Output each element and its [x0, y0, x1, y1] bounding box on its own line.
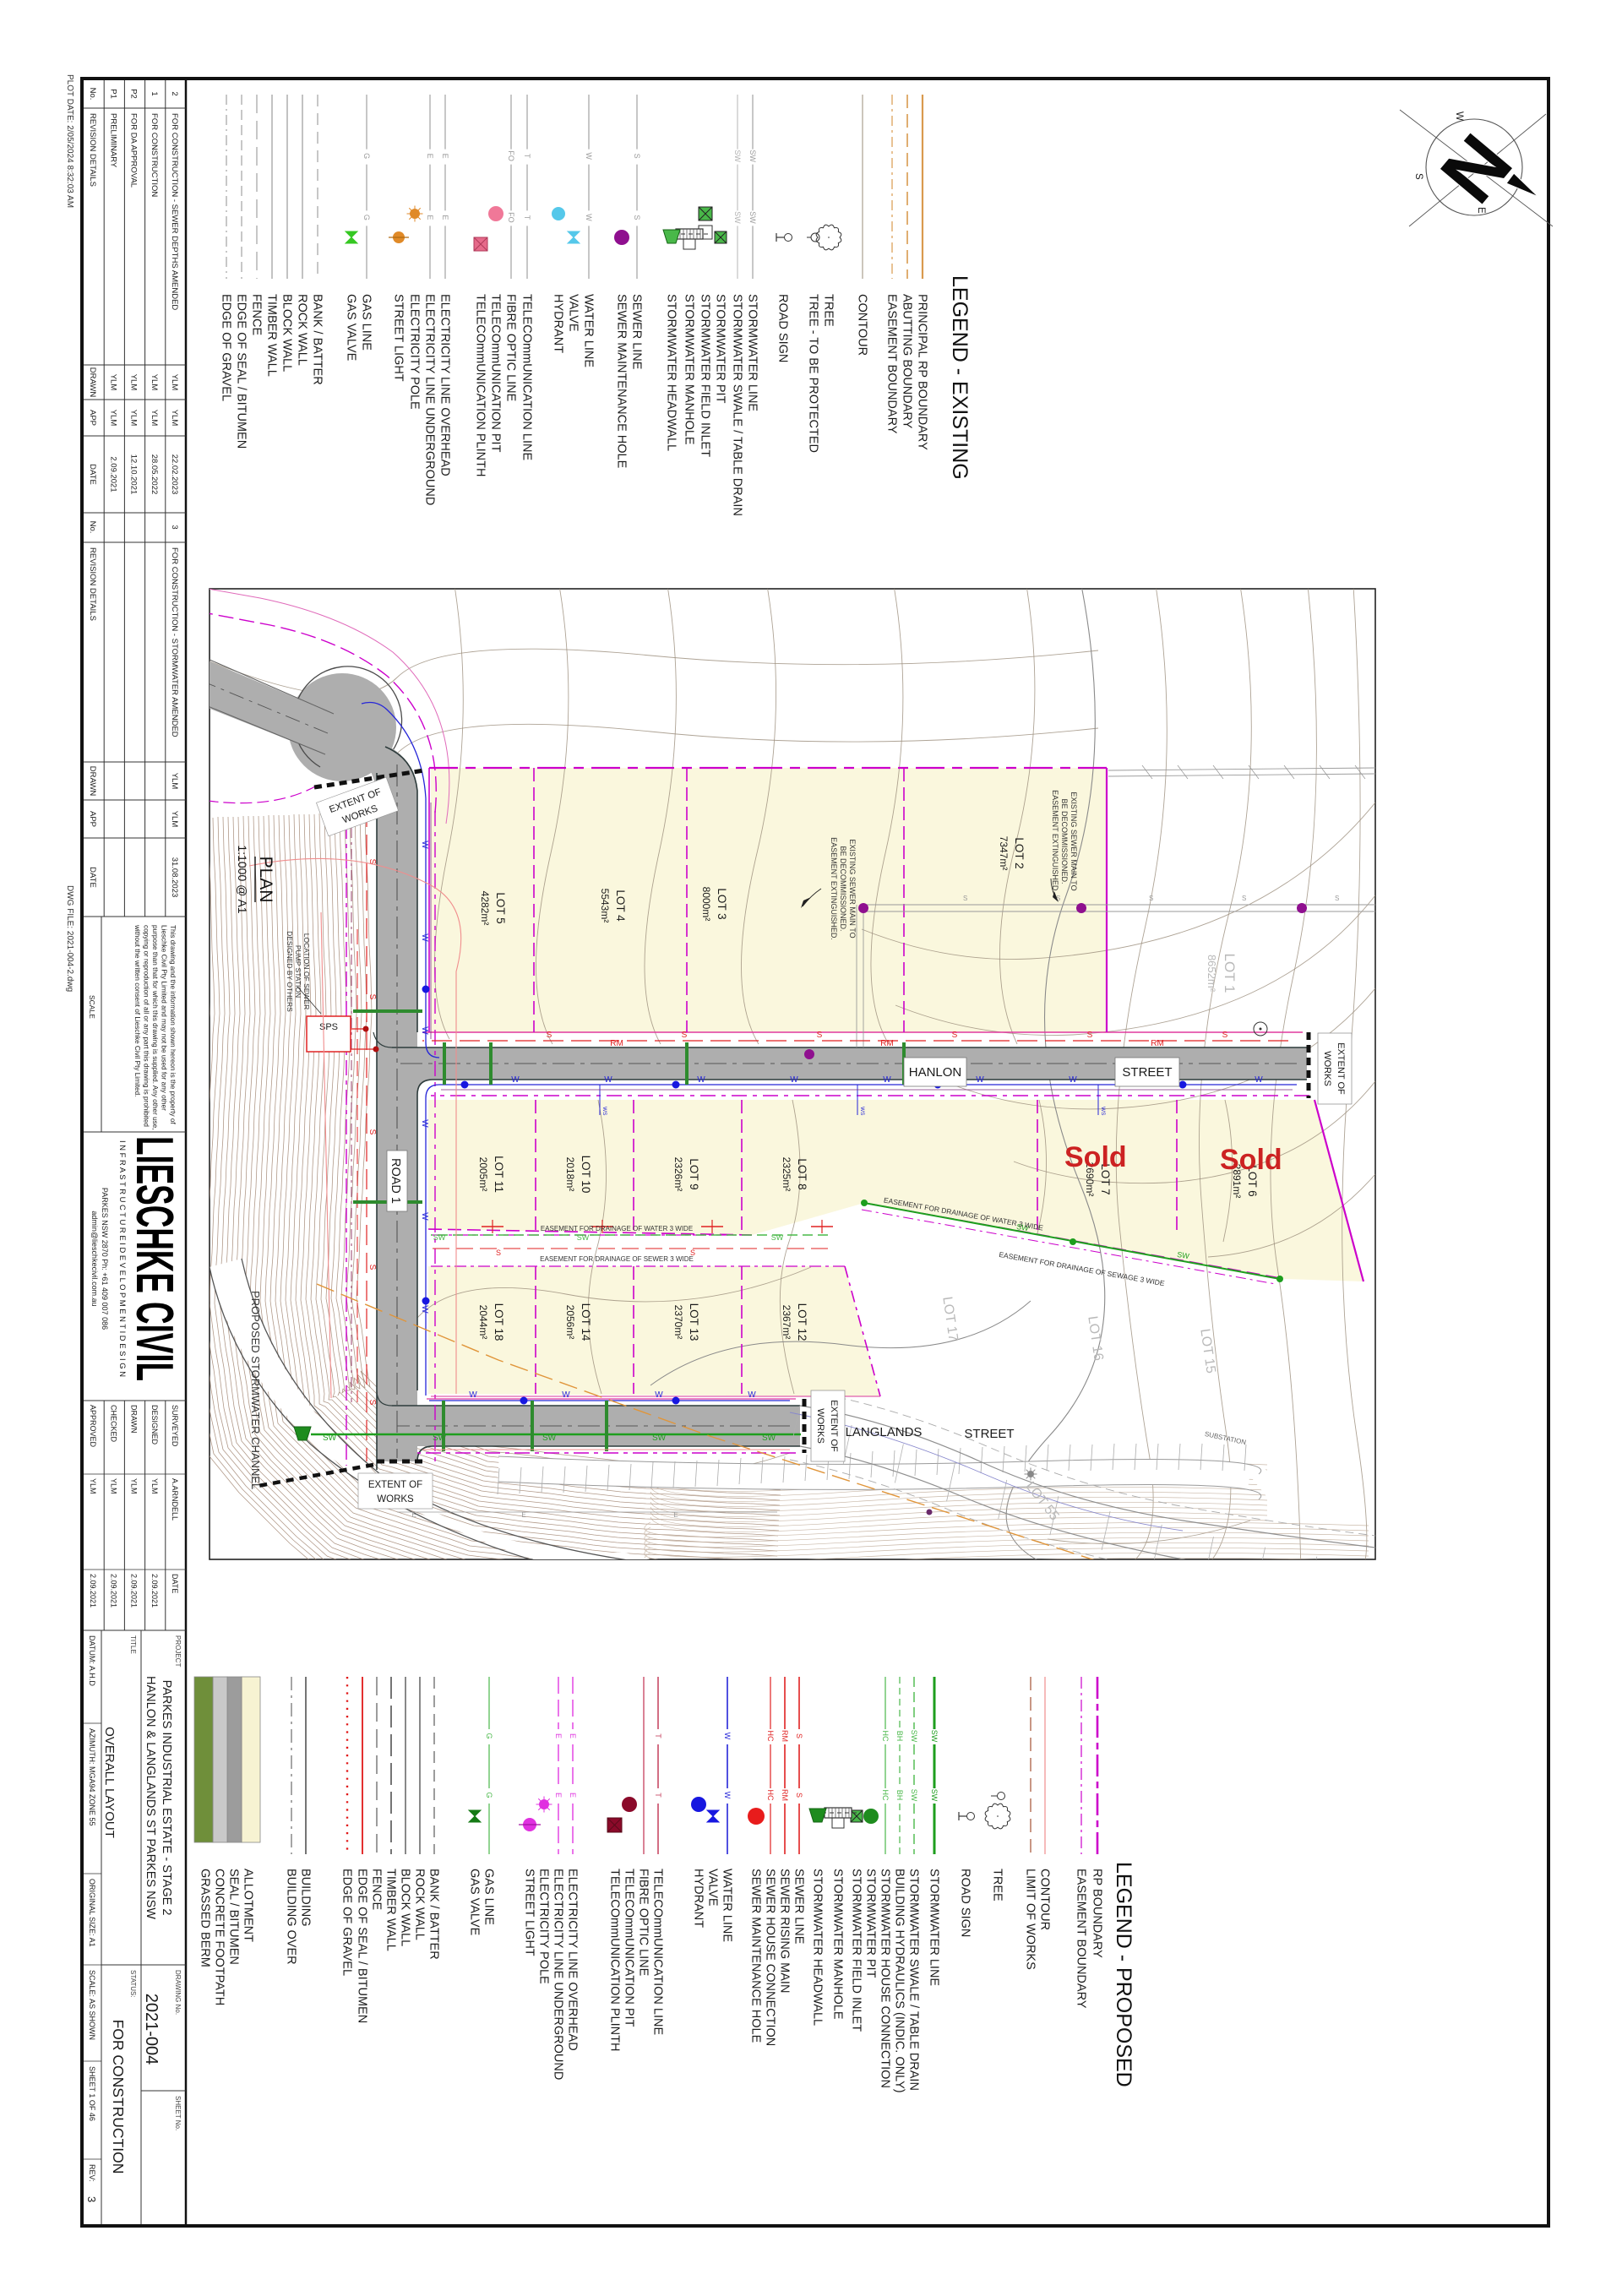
- svg-text:W: W: [511, 1075, 520, 1085]
- svg-text:8000m²: 8000m²: [700, 887, 712, 922]
- svg-text:RM: RM: [781, 1789, 789, 1801]
- svg-text:LEGEND - PROPOSED: LEGEND - PROPOSED: [1112, 1862, 1135, 2087]
- svg-text:SW: SW: [930, 1789, 939, 1802]
- svg-text:2.09.2021: 2.09.2021: [89, 1574, 97, 1608]
- svg-text:DATUM: A.H.D: DATUM: A.H.D: [88, 1635, 96, 1686]
- svg-text:W: W: [976, 1075, 984, 1085]
- svg-text:W: W: [420, 933, 429, 942]
- svg-text:2.09.2021: 2.09.2021: [150, 1574, 159, 1608]
- svg-text:S: S: [1242, 895, 1246, 902]
- svg-text:VALVE: VALVE: [706, 1869, 720, 1907]
- svg-text:EASEMENT BOUNDARY: EASEMENT BOUNDARY: [1075, 1869, 1088, 2009]
- svg-text:LOT 4: LOT 4: [614, 890, 627, 922]
- svg-text:YLM: YLM: [150, 374, 159, 391]
- svg-text:LIMIT OF WORKS: LIMIT OF WORKS: [1024, 1869, 1037, 1970]
- svg-text:S: S: [1149, 895, 1153, 902]
- svg-text:2044m²: 2044m²: [477, 1305, 489, 1340]
- svg-text:W: W: [585, 214, 593, 221]
- svg-text:FIBRE OPTIC LINE: FIBRE OPTIC LINE: [504, 294, 518, 402]
- svg-text:SURVEYED: SURVEYED: [171, 1405, 179, 1447]
- svg-text:EDGE OF SEAL / BITUMEN: EDGE OF SEAL / BITUMEN: [356, 1869, 369, 2023]
- svg-text:SW: SW: [748, 150, 757, 162]
- svg-text:RM: RM: [1151, 1039, 1164, 1048]
- svg-text:DATE: DATE: [171, 1574, 179, 1593]
- svg-text:LOCATION OF SEWER: LOCATION OF SEWER: [302, 933, 311, 1010]
- svg-text:8652m²: 8652m²: [1206, 955, 1218, 993]
- svg-text:HC: HC: [881, 1731, 890, 1742]
- svg-text:E: E: [569, 1733, 577, 1738]
- svg-text:LOT 10: LOT 10: [580, 1156, 592, 1194]
- svg-text:E: E: [426, 215, 434, 220]
- svg-text:FOR CONSTRUCTION: FOR CONSTRUCTION: [150, 113, 159, 197]
- svg-text:purpose than that for which t: purpose than that for which this drawing…: [151, 925, 159, 1130]
- svg-text:YLM: YLM: [170, 410, 179, 427]
- svg-text:1: 1: [150, 91, 159, 95]
- svg-text:W: W: [585, 152, 593, 160]
- svg-text:G: G: [362, 153, 371, 159]
- svg-text:2018m²: 2018m²: [564, 1157, 576, 1192]
- svg-text:E: E: [411, 1511, 416, 1519]
- svg-text:STORMWATER FIELD INLET: STORMWATER FIELD INLET: [850, 1869, 863, 2032]
- svg-text:SHEET No.: SHEET No.: [174, 2096, 182, 2130]
- svg-text:E: E: [554, 1793, 563, 1798]
- svg-text:SW: SW: [733, 211, 742, 224]
- svg-text:REVISION DETAILS: REVISION DETAILS: [88, 547, 97, 621]
- svg-text:FIBRE OPTIC LINE: FIBRE OPTIC LINE: [637, 1869, 650, 1977]
- svg-text:SCALE: SCALE: [88, 995, 96, 1019]
- svg-text:T: T: [654, 1793, 662, 1798]
- svg-text:3: 3: [170, 525, 179, 529]
- svg-text:APPROVED: APPROVED: [89, 1405, 97, 1448]
- svg-text:SW: SW: [577, 1233, 590, 1242]
- svg-text:Sold: Sold: [1220, 1144, 1282, 1176]
- svg-text:I N F R A S T R U C T U R E: I N F R A S T R U C T U R E I D E V E L …: [118, 1140, 127, 1377]
- svg-text:S: S: [1335, 895, 1339, 902]
- svg-text:W: W: [697, 1075, 705, 1085]
- svg-text:DATE: DATE: [88, 464, 97, 485]
- svg-text:EDGE OF GRAVEL: EDGE OF GRAVEL: [340, 1869, 354, 1976]
- svg-text:SW: SW: [910, 1789, 918, 1802]
- svg-text:STORMWATER PIT: STORMWATER PIT: [864, 1869, 878, 1978]
- svg-text:LOT 2: LOT 2: [1013, 837, 1026, 868]
- svg-text:S: S: [1087, 1031, 1093, 1040]
- svg-text:This drawing and the informati: This drawing and the information shown h…: [169, 925, 177, 1124]
- svg-text:WS: WS: [601, 1107, 607, 1116]
- svg-text:LOT 16: LOT 16: [1085, 1315, 1105, 1362]
- svg-text:TELECOmmUNICATION PIT: TELECOmmUNICATION PIT: [623, 1869, 636, 2027]
- svg-text:28.05.2022: 28.05.2022: [150, 454, 159, 495]
- svg-text:TIMBER WALL: TIMBER WALL: [384, 1869, 398, 1951]
- svg-text:E: E: [554, 1733, 563, 1738]
- svg-text:APP: APP: [88, 410, 97, 426]
- svg-text:S: S: [817, 1031, 823, 1040]
- svg-text:admin@lieschkecivil.com.au: admin@lieschkecivil.com.au: [90, 1211, 99, 1306]
- svg-text:ABUTTING BOUNDARY: ABUTTING BOUNDARY: [901, 294, 914, 429]
- svg-text:S: S: [367, 1129, 377, 1135]
- svg-text:STATUS:: STATUS:: [129, 1970, 137, 1998]
- svg-text:A.ARNDELL: A.ARNDELL: [171, 1478, 179, 1521]
- svg-text:2.09.2021: 2.09.2021: [109, 1574, 117, 1608]
- svg-text:E: E: [441, 215, 449, 220]
- svg-text:HC: HC: [881, 1790, 890, 1801]
- svg-text:LOT 13: LOT 13: [688, 1303, 700, 1341]
- svg-text:RM: RM: [880, 1039, 894, 1048]
- svg-text:CHECKED: CHECKED: [109, 1405, 117, 1443]
- svg-text:PARKES NSW 2870 Ph: +61 409: PARKES NSW 2870 Ph: +61 409 007 086: [101, 1188, 109, 1330]
- svg-text:FOR CONSTRUCTION - SEWER DEPTH: FOR CONSTRUCTION - SEWER DEPTHS AMENDED: [170, 113, 179, 310]
- svg-text:SPS: SPS: [319, 1022, 338, 1032]
- svg-text:LOT 3: LOT 3: [716, 888, 728, 919]
- svg-text:DATE: DATE: [88, 867, 97, 888]
- svg-text:YLM: YLM: [170, 811, 179, 828]
- svg-text:G: G: [485, 1733, 493, 1738]
- svg-text:SW: SW: [910, 1730, 918, 1743]
- svg-text:PROPOSED STORMWATER CHANNEL: PROPOSED STORMWATER CHANNEL: [249, 1291, 262, 1489]
- svg-text:ROAD SIGN: ROAD SIGN: [959, 1869, 972, 1937]
- svg-text:S: S: [682, 1031, 688, 1040]
- svg-text:W: W: [883, 1075, 891, 1085]
- svg-text:SEWER RISING MAIN: SEWER RISING MAIN: [778, 1869, 792, 1993]
- svg-text:EASEMENT EXTINGUISHED.: EASEMENT EXTINGUISHED.: [1051, 790, 1059, 893]
- svg-text:WATER LINE: WATER LINE: [721, 1869, 734, 1942]
- svg-text:DRAWN: DRAWN: [88, 766, 97, 797]
- svg-text:SEWER LINE: SEWER LINE: [792, 1869, 806, 1945]
- svg-text:CONTOUR: CONTOUR: [1038, 1869, 1052, 1930]
- svg-text:12.10.2021: 12.10.2021: [129, 454, 139, 495]
- svg-text:T: T: [523, 154, 531, 159]
- svg-text:BE DECOMMISSIONED.: BE DECOMMISSIONED.: [1060, 798, 1069, 884]
- svg-text:W: W: [748, 1390, 756, 1400]
- svg-text:BLOCK WALL: BLOCK WALL: [399, 1869, 412, 1946]
- svg-text:1:1000 @ A1: 1:1000 @ A1: [236, 845, 249, 913]
- svg-text:22.02.2023: 22.02.2023: [170, 454, 179, 495]
- svg-text:APP: APP: [88, 811, 97, 827]
- svg-text:2021-004: 2021-004: [142, 1994, 161, 2065]
- svg-text:W: W: [723, 1792, 732, 1799]
- svg-text:TELECOmmUNICATION LINE: TELECOmmUNICATION LINE: [520, 294, 534, 460]
- svg-text:Lieschke Civil Pty Limited and: Lieschke Civil Pty Limited and may not b…: [161, 925, 168, 1111]
- svg-text:BH: BH: [895, 1790, 904, 1801]
- svg-text:S: S: [367, 1400, 377, 1406]
- svg-text:WS: WS: [1100, 1107, 1106, 1116]
- svg-text:LOT 9: LOT 9: [688, 1158, 700, 1189]
- svg-text:ROAD 1: ROAD 1: [389, 1158, 402, 1204]
- svg-text:YLM: YLM: [130, 1478, 139, 1494]
- svg-text:ROCK WALL: ROCK WALL: [413, 1869, 427, 1940]
- svg-text:LOT 5: LOT 5: [494, 892, 507, 923]
- svg-text:S: S: [795, 1733, 803, 1738]
- svg-text:HYDRANT: HYDRANT: [692, 1869, 705, 1928]
- svg-text:W: W: [723, 1733, 732, 1740]
- svg-text:FO: FO: [507, 150, 515, 161]
- svg-text:S: S: [795, 1793, 803, 1798]
- svg-text:YLM: YLM: [108, 410, 117, 427]
- svg-text:LOT 8: LOT 8: [796, 1158, 808, 1189]
- svg-text:Sold: Sold: [1064, 1141, 1127, 1173]
- svg-text:BE DECOMMISSIONED.: BE DECOMMISSIONED.: [839, 846, 847, 931]
- svg-text:BLOCK WALL: BLOCK WALL: [280, 294, 294, 372]
- svg-text:W: W: [1255, 1075, 1263, 1085]
- svg-text:2367m²: 2367m²: [781, 1305, 792, 1340]
- svg-text:LOT 17: LOT 17: [939, 1296, 960, 1342]
- svg-text:EASEMENT FOR DRAINAGE OF SEWAG: EASEMENT FOR DRAINAGE OF SEWAGE 3 WIDE: [999, 1250, 1166, 1287]
- svg-text:W: W: [1069, 1075, 1077, 1085]
- svg-text:E: E: [441, 154, 449, 159]
- svg-text:FENCE: FENCE: [250, 294, 264, 335]
- svg-text:W: W: [420, 1026, 429, 1035]
- svg-text:SW: SW: [433, 1233, 446, 1242]
- svg-text:GAS VALVE: GAS VALVE: [345, 294, 358, 362]
- svg-text:DRAWING No.: DRAWING No.: [174, 1970, 182, 2015]
- svg-text:ELECTRICITY LINE OVERHEAD: ELECTRICITY LINE OVERHEAD: [438, 294, 452, 476]
- svg-text:EXTENT OF: EXTENT OF: [829, 1400, 839, 1452]
- svg-text:LIESCHKE CIVIL: LIESCHKE CIVIL: [125, 1136, 183, 1381]
- svg-text:YLM: YLM: [129, 410, 139, 427]
- svg-text:WORKS: WORKS: [377, 1494, 414, 1504]
- svg-text:RM: RM: [781, 1730, 789, 1742]
- svg-text:EXISTING SEWER MAIN TO: EXISTING SEWER MAIN TO: [848, 839, 857, 938]
- svg-text:W: W: [655, 1390, 663, 1400]
- svg-text:2005m²: 2005m²: [477, 1157, 489, 1192]
- svg-text:E: E: [521, 1511, 525, 1519]
- svg-text:FOR CONSTRUCTION - STORMWATER: FOR CONSTRUCTION - STORMWATER AMENDED: [170, 547, 179, 737]
- svg-text:YLM: YLM: [129, 374, 139, 391]
- svg-text:WS: WS: [859, 1107, 865, 1116]
- svg-text:5543m²: 5543m²: [599, 889, 611, 923]
- svg-text:SEAL / BITUMEN: SEAL / BITUMEN: [227, 1869, 241, 1965]
- svg-text:GRASSED BERM: GRASSED BERM: [199, 1869, 212, 1967]
- svg-text:S: S: [367, 1265, 377, 1270]
- svg-text:W: W: [420, 841, 429, 849]
- svg-text:LOT 1: LOT 1: [1222, 954, 1238, 993]
- svg-text:BANK / BATTER: BANK / BATTER: [311, 294, 324, 385]
- svg-text:DESIGNED: DESIGNED: [150, 1405, 159, 1445]
- svg-text:STREET: STREET: [1122, 1065, 1172, 1080]
- svg-text:SW: SW: [771, 1233, 784, 1242]
- svg-text:SW: SW: [930, 1730, 939, 1743]
- svg-text:TREE: TREE: [991, 1869, 1004, 1902]
- svg-text:2325m²: 2325m²: [781, 1157, 792, 1192]
- svg-text:VALVE: VALVE: [567, 294, 580, 332]
- svg-text:EDGE OF GRAVEL: EDGE OF GRAVEL: [220, 294, 233, 401]
- svg-text:SW: SW: [652, 1434, 667, 1443]
- svg-text:LOT 18: LOT 18: [493, 1303, 505, 1341]
- svg-text:YLM: YLM: [109, 1478, 117, 1494]
- svg-text:DRAWN: DRAWN: [88, 367, 97, 398]
- svg-text:PLAN: PLAN: [256, 857, 275, 903]
- svg-text:FOR DA APPROVAL: FOR DA APPROVAL: [129, 113, 139, 188]
- svg-text:OVERALL LAYOUT: OVERALL LAYOUT: [102, 1727, 117, 1838]
- svg-text:WORKS: WORKS: [815, 1408, 825, 1444]
- svg-text:ORIGINAL SIZE: A1: ORIGINAL SIZE: A1: [88, 1879, 96, 1947]
- svg-text:TELECOmmUNICATION LINE: TELECOmmUNICATION LINE: [651, 1869, 665, 2035]
- svg-text:S: S: [496, 1249, 501, 1257]
- svg-text:STREET: STREET: [964, 1427, 1014, 1441]
- svg-text:GAS LINE: GAS LINE: [482, 1869, 496, 1925]
- svg-text:ELECTRICITY POLE: ELECTRICITY POLE: [537, 1869, 551, 1984]
- svg-text:CONCRETE FOOTPATH: CONCRETE FOOTPATH: [213, 1869, 226, 2005]
- svg-text:SEWER MAINTENANCE HOLE: SEWER MAINTENANCE HOLE: [615, 294, 629, 469]
- svg-text:SHEET 1 OF 46: SHEET 1 OF 46: [88, 2066, 96, 2121]
- svg-text:S: S: [1222, 1031, 1228, 1040]
- svg-text:YLM: YLM: [108, 374, 117, 391]
- svg-text:ROCK WALL: ROCK WALL: [296, 294, 309, 366]
- svg-text:SCALE: AS SHOWN: SCALE: AS SHOWN: [88, 1970, 96, 2040]
- svg-text:2.09.2021: 2.09.2021: [108, 456, 117, 492]
- svg-text:SUBSTATION: SUBSTATION: [1204, 1430, 1247, 1446]
- svg-text:copying or reproduction of al: copying or reproduction of all or any pa…: [143, 925, 150, 1127]
- svg-text:S: S: [1413, 173, 1423, 180]
- svg-text:LOT 12: LOT 12: [796, 1303, 808, 1341]
- svg-text:E: E: [426, 154, 434, 159]
- svg-text:SW: SW: [748, 211, 757, 224]
- svg-text:W: W: [420, 1119, 429, 1128]
- svg-text:PRINCIPAL RP BOUNDARY: PRINCIPAL RP BOUNDARY: [916, 294, 929, 450]
- svg-text:YLM: YLM: [150, 1478, 159, 1494]
- svg-text:SW: SW: [733, 150, 742, 162]
- svg-text:ELECTRICITY LINE UNDERGROUND: ELECTRICITY LINE UNDERGROUND: [423, 294, 437, 505]
- svg-text:EXTENT OF: EXTENT OF: [368, 1480, 422, 1490]
- svg-text:DWG FILE: 2021-004-2.dwg: DWG FILE: 2021-004-2.dwg: [65, 885, 74, 992]
- svg-text:EXTENT OF: EXTENT OF: [1336, 1042, 1346, 1095]
- svg-text:P1: P1: [108, 89, 117, 99]
- svg-text:PUMP STATION: PUMP STATION: [294, 945, 302, 998]
- svg-text:E: E: [569, 1793, 577, 1798]
- svg-text:PRELIMINARY: PRELIMINARY: [108, 113, 117, 168]
- svg-text:ROAD SIGN: ROAD SIGN: [776, 294, 790, 362]
- svg-text:DESIGNED BY OTHERS: DESIGNED BY OTHERS: [286, 931, 294, 1012]
- svg-text:TELECOmmUNICATION PIT: TELECOmmUNICATION PIT: [489, 294, 503, 453]
- svg-text:TIMBER WALL: TIMBER WALL: [265, 294, 279, 377]
- svg-text:BUILDING: BUILDING: [299, 1869, 313, 1927]
- svg-text:FOR CONSTRUCTION: FOR CONSTRUCTION: [110, 2020, 127, 2174]
- svg-text:TELECOmmUNICATION PLINTH: TELECOmmUNICATION PLINTH: [608, 1869, 622, 2051]
- svg-text:TELECOmmUNICATION PLINTH: TELECOmmUNICATION PLINTH: [474, 294, 487, 476]
- svg-text:LOT 11: LOT 11: [493, 1156, 505, 1193]
- svg-text:FENCE: FENCE: [370, 1869, 384, 1910]
- svg-text:RP BOUNDARY: RP BOUNDARY: [1091, 1869, 1104, 1958]
- svg-text:LOT 15: LOT 15: [1197, 1328, 1217, 1374]
- svg-text:ELECTRICITY POLE: ELECTRICITY POLE: [408, 294, 422, 410]
- svg-text:AZIMUTH: MGA94 ZONE 55: AZIMUTH: MGA94 ZONE 55: [88, 1728, 96, 1826]
- svg-text:SW: SW: [542, 1434, 557, 1443]
- svg-text:without the written consent o: without the written consent of Lieschke …: [133, 924, 141, 1096]
- svg-text:LEGEND - EXISTING: LEGEND - EXISTING: [948, 275, 972, 480]
- svg-text:G: G: [485, 1792, 493, 1798]
- svg-text:HANLON & LANGLANDS ST PARKES N: HANLON & LANGLANDS ST PARKES NSW: [144, 1676, 157, 1919]
- svg-text:EASEMENT BOUNDARY: EASEMENT BOUNDARY: [885, 294, 899, 434]
- svg-text:PLOT DATE: 2/05/2024 8:32:03 A: PLOT DATE: 2/05/2024 8:32:03 AM: [65, 74, 74, 208]
- svg-text:S: S: [547, 1031, 552, 1040]
- svg-text:STORMWATER MANHOLE: STORMWATER MANHOLE: [831, 1869, 845, 2020]
- svg-text:S: S: [633, 215, 641, 220]
- svg-text:SEWER HOUSE CONNECTION: SEWER HOUSE CONNECTION: [764, 1869, 777, 2046]
- svg-text:BUILDING OVER: BUILDING OVER: [285, 1869, 298, 1965]
- svg-text:GAS VALVE: GAS VALVE: [468, 1869, 482, 1936]
- svg-text:W: W: [1454, 112, 1464, 121]
- svg-text:2326m²: 2326m²: [672, 1157, 684, 1192]
- svg-text:YLM: YLM: [170, 374, 179, 391]
- svg-text:EASEMENT EXTINGUISHED.: EASEMENT EXTINGUISHED.: [830, 837, 838, 940]
- svg-text:HC: HC: [766, 1731, 775, 1742]
- svg-text:W: W: [420, 1212, 429, 1221]
- svg-text:W: W: [562, 1390, 570, 1400]
- svg-text:ELECTRICITY LINE UNDERGROUND: ELECTRICITY LINE UNDERGROUND: [552, 1869, 565, 2080]
- svg-text:W: W: [604, 1075, 612, 1085]
- svg-text:EASEMENT FOR DRAINAGE OF WATER: EASEMENT FOR DRAINAGE OF WATER 3 WIDE: [541, 1225, 693, 1232]
- svg-text:HYDRANT: HYDRANT: [552, 294, 565, 353]
- svg-text:ALLOTMENT: ALLOTMENT: [242, 1869, 255, 1942]
- svg-text:STORMWATER HOUSE CONNECTION: STORMWATER HOUSE CONNECTION: [879, 1869, 892, 2088]
- svg-text:PARKES INDUSTRIAL ESTATE - STA: PARKES INDUSTRIAL ESTATE - STAGE 2: [160, 1680, 173, 1916]
- svg-text:No.: No.: [88, 88, 97, 101]
- svg-text:YLM: YLM: [170, 773, 179, 790]
- svg-text:STORMWATER LINE: STORMWATER LINE: [746, 294, 759, 411]
- svg-text:W: W: [790, 1075, 798, 1085]
- svg-text:BANK / BATTER: BANK / BATTER: [427, 1869, 441, 1960]
- svg-text:BH: BH: [895, 1731, 904, 1742]
- svg-text:STORMWATER SWALE / TABLE DRAIN: STORMWATER SWALE / TABLE DRAIN: [907, 1869, 921, 2091]
- svg-text:STORMWATER MANHOLE: STORMWATER MANHOLE: [683, 294, 696, 445]
- svg-text:YLM: YLM: [150, 410, 159, 427]
- svg-text:TREE: TREE: [822, 294, 835, 327]
- svg-text:REVISION DETAILS: REVISION DETAILS: [88, 113, 97, 187]
- svg-text:STREET LIGHT: STREET LIGHT: [523, 1869, 536, 1956]
- svg-text:W: W: [469, 1390, 477, 1400]
- svg-text:3: 3: [85, 2196, 98, 2202]
- svg-text:BUILDING HYDRAULICS (INDIC. ON: BUILDING HYDRAULICS (INDIC. ONLY): [893, 1869, 906, 2093]
- svg-text:CONTOUR: CONTOUR: [856, 294, 869, 356]
- svg-text:LOT 14: LOT 14: [580, 1303, 592, 1341]
- svg-text:WORKS: WORKS: [1322, 1051, 1332, 1086]
- svg-text:S: S: [633, 154, 641, 159]
- svg-text:DRAWN: DRAWN: [130, 1405, 139, 1434]
- svg-text:4282m²: 4282m²: [479, 891, 491, 926]
- svg-text:HANLON: HANLON: [909, 1065, 962, 1080]
- svg-text:W: W: [420, 1305, 429, 1314]
- svg-text:STORMWATER HEADWALL: STORMWATER HEADWALL: [665, 294, 678, 451]
- svg-text:S: S: [952, 1031, 958, 1040]
- svg-text:2056m²: 2056m²: [564, 1305, 576, 1340]
- svg-text:STORMWATER SWALE / TABLE DRAIN: STORMWATER SWALE / TABLE DRAIN: [731, 294, 744, 516]
- svg-text:G: G: [362, 215, 371, 220]
- svg-text:HC: HC: [766, 1790, 775, 1801]
- svg-text:STORMWATER FIELD INLET: STORMWATER FIELD INLET: [699, 294, 712, 457]
- svg-text:SEWER MAINTENANCE HOLE: SEWER MAINTENANCE HOLE: [749, 1869, 763, 2043]
- svg-text:E: E: [673, 1511, 678, 1519]
- svg-text:EXISTING SEWER MAIN TO: EXISTING SEWER MAIN TO: [1070, 792, 1078, 890]
- svg-text:S: S: [367, 994, 377, 1000]
- svg-text:EDGE OF SEAL / BITUMEN: EDGE OF SEAL / BITUMEN: [235, 294, 248, 449]
- svg-text:T: T: [523, 215, 531, 220]
- svg-text:REV:: REV:: [88, 2164, 96, 2182]
- svg-text:YLM: YLM: [89, 1478, 97, 1494]
- svg-text:SEWER LINE: SEWER LINE: [630, 294, 644, 370]
- svg-text:No.: No.: [88, 521, 97, 534]
- svg-text:EASEMENT FOR DRAINAGE OF SEWER: EASEMENT FOR DRAINAGE OF SEWER 3 WIDE: [540, 1255, 694, 1263]
- svg-text:ELECTRICITY LINE OVERHEAD: ELECTRICITY LINE OVERHEAD: [566, 1869, 580, 2051]
- svg-text:S: S: [963, 895, 967, 902]
- svg-text:2.09.2021: 2.09.2021: [130, 1574, 139, 1608]
- svg-text:SW: SW: [762, 1434, 776, 1443]
- svg-text:STORMWATER LINE: STORMWATER LINE: [928, 1869, 941, 1986]
- svg-text:STORMWATER HEADWALL: STORMWATER HEADWALL: [811, 1869, 825, 2026]
- svg-text:PROJECT: PROJECT: [174, 1635, 182, 1667]
- svg-text:STREET LIGHT: STREET LIGHT: [392, 294, 405, 382]
- svg-text:GAS LINE: GAS LINE: [360, 294, 373, 351]
- svg-text:T: T: [654, 1733, 662, 1738]
- svg-text:TITLE: TITLE: [129, 1635, 137, 1654]
